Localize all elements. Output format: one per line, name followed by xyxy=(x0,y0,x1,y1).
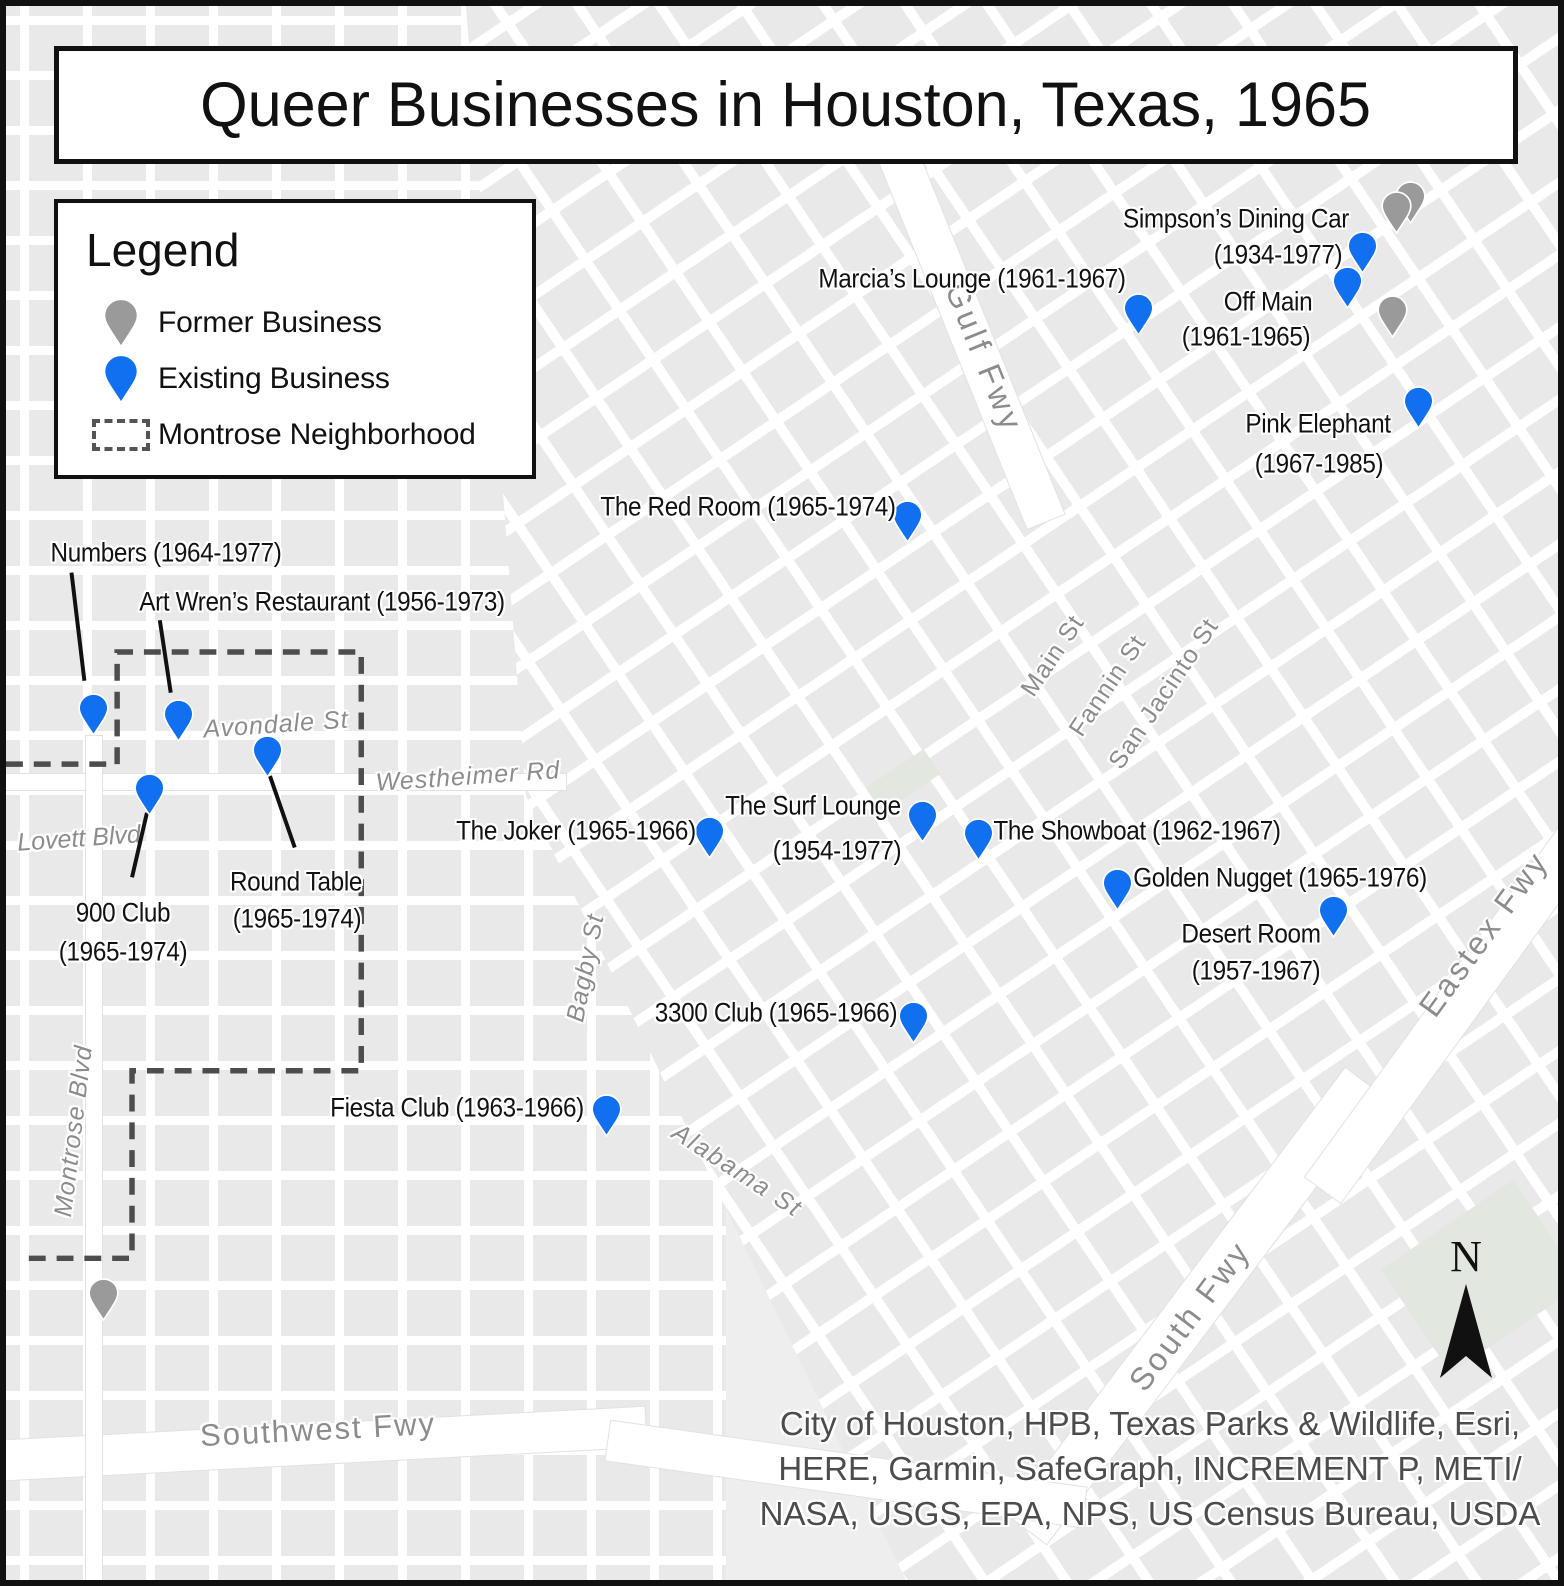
north-arrow: N xyxy=(1430,1234,1502,1385)
pin-unlabeled-former-1[interactable] xyxy=(1377,295,1408,343)
pin-numbers[interactable] xyxy=(78,693,109,741)
pin-art-wrens-restaurant[interactable] xyxy=(163,699,194,747)
attribution-line: NASA, USGS, EPA, NPS, US Census Bureau, … xyxy=(750,1491,1550,1536)
business-label-desert-line2: (1957-1967) xyxy=(1192,956,1320,987)
pin-fiesta-club[interactable] xyxy=(591,1094,622,1142)
legend-panel: Legend Former Business Existing Business… xyxy=(54,199,536,479)
pin-marcias-lounge[interactable] xyxy=(1123,293,1154,341)
business-label-off-main-line1: Off Main xyxy=(1224,287,1313,318)
north-arrow-icon xyxy=(1432,1280,1500,1380)
business-label-900-club-line1: 900 Club xyxy=(76,898,170,929)
attribution-text: City of Houston, HPB, Texas Parks & Wild… xyxy=(750,1401,1550,1536)
business-label-art-wrens: Art Wren’s Restaurant (1956-1973) xyxy=(139,587,504,618)
business-label-marcias-lounge: Marcia’s Lounge (1961-1967) xyxy=(818,264,1125,295)
dashed-outline-icon xyxy=(84,419,158,451)
business-label-numbers: Numbers (1964-1977) xyxy=(51,538,282,569)
attribution-line: HERE, Garmin, SafeGraph, INCREMENT P, ME… xyxy=(750,1446,1550,1491)
business-label-off-main-line2: (1961-1965) xyxy=(1182,322,1310,353)
legend-item-existing-business: Existing Business xyxy=(84,351,506,407)
business-label-fiesta-club: Fiesta Club (1963-1966) xyxy=(330,1093,584,1124)
business-label-the-red-room: The Red Room (1965-1974) xyxy=(600,492,895,523)
page-title: Queer Businesses in Houston, Texas, 1965 xyxy=(201,69,1372,141)
business-label-pink-elephant-line2: (1967-1985) xyxy=(1255,449,1383,480)
pin-round-table[interactable] xyxy=(252,735,283,783)
business-label-pink-elephant-line1: Pink Elephant xyxy=(1245,409,1390,440)
north-label: N xyxy=(1430,1234,1502,1280)
business-label-round-table-line2: (1965-1974) xyxy=(233,904,361,935)
business-label-simpsons-line2: (1934-1977) xyxy=(1214,240,1342,271)
existing-business-pin-icon xyxy=(84,354,158,404)
pin-the-red-room[interactable] xyxy=(892,500,923,548)
business-label-golden-nugget: Golden Nugget (1965-1976) xyxy=(1133,863,1427,894)
map-title-box: Queer Businesses in Houston, Texas, 1965 xyxy=(54,46,1518,164)
pin-desert-room[interactable] xyxy=(1318,895,1349,943)
legend-item-label: Montrose Neighborhood xyxy=(158,418,476,452)
business-label-surf-line2: (1954-1977) xyxy=(773,836,901,867)
pin-unlabeled-former-2[interactable] xyxy=(88,1278,119,1326)
legend-item-montrose-neighborhood: Montrose Neighborhood xyxy=(84,407,506,463)
business-label-the-joker: The Joker (1965-1966) xyxy=(456,816,696,847)
business-label-desert-line1: Desert Room xyxy=(1181,919,1320,950)
pin-the-joker[interactable] xyxy=(694,816,725,864)
map-frame: Gulf FwyMain StFannin StSan Jacinto StWe… xyxy=(0,0,1564,1586)
pin-the-showboat[interactable] xyxy=(963,818,994,866)
business-label-simpsons-line1: Simpson’s Dining Car xyxy=(1123,204,1349,235)
pin-pink-elephant[interactable] xyxy=(1403,386,1434,434)
legend-item-former-business: Former Business xyxy=(84,295,506,351)
pin-3300-club[interactable] xyxy=(898,1001,929,1049)
business-label-the-showboat: The Showboat (1962-1967) xyxy=(993,816,1280,847)
street-band-montrose xyxy=(86,736,102,1580)
legend-item-label: Existing Business xyxy=(158,362,390,396)
legend-item-label: Former Business xyxy=(158,306,382,340)
pin-off-main[interactable] xyxy=(1332,266,1363,314)
pin-900-club[interactable] xyxy=(134,773,165,821)
legend-title: Legend xyxy=(86,223,506,277)
pin-golden-nugget[interactable] xyxy=(1102,868,1133,916)
former-business-pin-icon xyxy=(84,298,158,348)
business-label-round-table-line1: Round Table xyxy=(230,867,362,898)
pin-simpsons-dining-car[interactable] xyxy=(1381,191,1412,239)
attribution-line: City of Houston, HPB, Texas Parks & Wild… xyxy=(750,1401,1550,1446)
business-label-900-club-line2: (1965-1974) xyxy=(59,937,187,968)
business-label-3300-club: 3300 Club (1965-1966) xyxy=(655,998,897,1029)
business-label-surf-line1: The Surf Lounge xyxy=(725,791,901,822)
pin-the-surf-lounge[interactable] xyxy=(907,800,938,848)
